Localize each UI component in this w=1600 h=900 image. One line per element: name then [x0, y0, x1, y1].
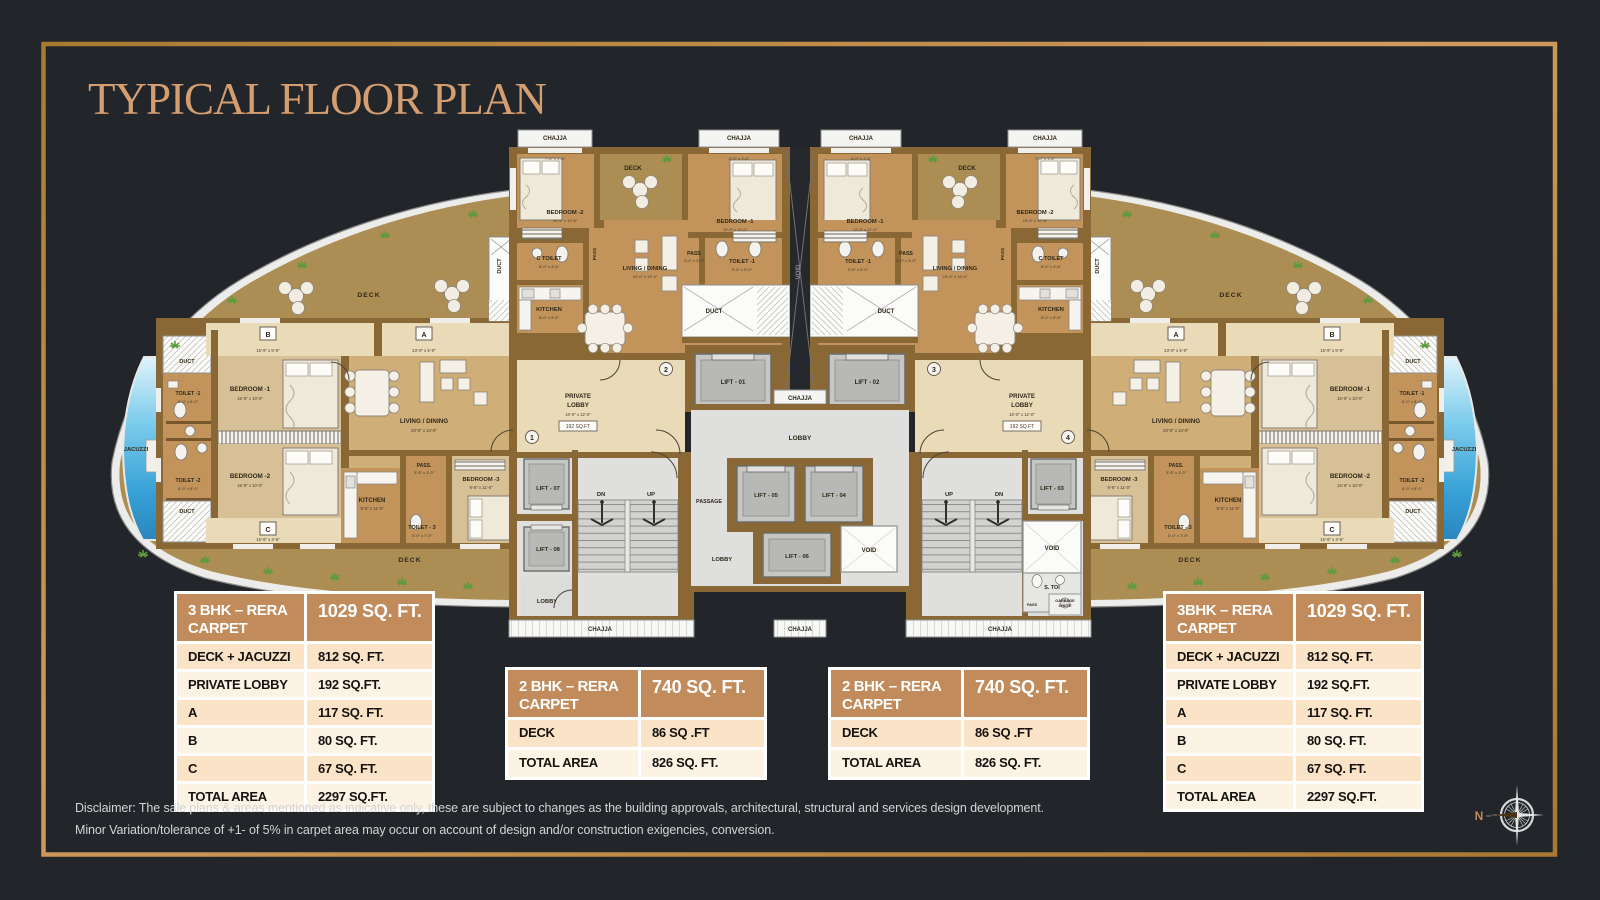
svg-text:PASS: PASS — [592, 248, 597, 260]
svg-text:C TOILET: C TOILET — [537, 256, 563, 262]
svg-text:TOILET -1: TOILET -1 — [729, 259, 755, 265]
svg-text:BEDROOM -1: BEDROOM -1 — [716, 219, 754, 225]
svg-text:PASSAGE: PASSAGE — [696, 499, 722, 505]
svg-text:7′-0″ x 1′-6″: 7′-0″ x 1′-6″ — [1035, 156, 1056, 161]
svg-text:KITCHEN: KITCHEN — [1038, 307, 1064, 313]
svg-text:C: C — [1329, 527, 1334, 534]
svg-text:LOBBY: LOBBY — [789, 435, 812, 442]
svg-text:JACUZZI: JACUZZI — [1452, 447, 1477, 453]
svg-text:15′-9″ x 10′-0″: 15′-9″ x 10′-0″ — [1337, 483, 1363, 488]
svg-text:DN: DN — [597, 492, 605, 498]
svg-text:15′-9″ x 10′-0″: 15′-9″ x 10′-0″ — [237, 483, 263, 488]
svg-text:VOID: VOID — [862, 548, 877, 554]
svg-text:6′-0″ x 1′-6″: 6′-0″ x 1′-6″ — [729, 156, 750, 161]
svg-text:8′-0″ x 5′-6″: 8′-0″ x 5′-6″ — [539, 315, 560, 320]
svg-text:9′-6″ x 11′-0″: 9′-6″ x 11′-0″ — [469, 485, 493, 490]
svg-text:BEDROOM -2: BEDROOM -2 — [1330, 473, 1371, 480]
svg-text:6′-0″ x 1′-6″: 6′-0″ x 1′-6″ — [851, 156, 872, 161]
svg-text:LIFT - 03: LIFT - 03 — [1040, 486, 1065, 492]
svg-text:LIFT - 04: LIFT - 04 — [822, 493, 847, 499]
svg-text:9′-6″ x 5′-0″: 9′-6″ x 5′-0″ — [732, 267, 753, 272]
svg-text:3′-5″ x 3′-5″: 3′-5″ x 3′-5″ — [1166, 470, 1187, 475]
svg-text:15′-9″ x 10′-0″: 15′-9″ x 10′-0″ — [1337, 396, 1363, 401]
svg-text:LIVING / DINING: LIVING / DINING — [1152, 418, 1200, 425]
svg-text:CHAJJA: CHAJJA — [788, 627, 813, 633]
svg-text:LIVING / DINING: LIVING / DINING — [933, 266, 978, 272]
svg-text:23′-0″ x 5′-0″: 23′-0″ x 5′-0″ — [1164, 348, 1188, 353]
svg-text:UP: UP — [945, 492, 953, 498]
svg-text:10′-0″ x 19′-0″: 10′-0″ x 19′-0″ — [943, 274, 968, 279]
svg-text:3′-0″ x 3′-0″: 3′-0″ x 3′-0″ — [896, 258, 917, 263]
svg-text:PASS.: PASS. — [1169, 463, 1184, 469]
svg-text:6′-0″ x 8′-0″: 6′-0″ x 8′-0″ — [1402, 399, 1423, 404]
svg-text:TOILET -1: TOILET -1 — [176, 391, 201, 397]
svg-text:12′-9″ x 11′-0″: 12′-9″ x 11′-0″ — [723, 227, 748, 232]
svg-text:2: 2 — [664, 367, 668, 374]
svg-text:10′-9″ x 10′-6″: 10′-9″ x 10′-6″ — [553, 218, 578, 223]
svg-text:B: B — [1329, 332, 1334, 339]
svg-text:VOID: VOID — [796, 264, 802, 279]
svg-text:PASS: PASS — [899, 251, 913, 257]
svg-text:B: B — [265, 332, 270, 339]
svg-text:KITCHEN: KITCHEN — [536, 307, 562, 313]
svg-text:VOID: VOID — [1045, 546, 1060, 552]
svg-text:LOBBY: LOBBY — [1011, 402, 1034, 409]
svg-text:DECK: DECK — [624, 165, 642, 172]
svg-text:KITCHEN: KITCHEN — [359, 498, 386, 504]
svg-text:PASS: PASS — [687, 251, 701, 257]
svg-text:DUCT: DUCT — [706, 309, 723, 315]
svg-text:N: N — [1475, 809, 1484, 823]
svg-text:BEDROOM -1: BEDROOM -1 — [1330, 386, 1371, 393]
svg-text:CHAJJA: CHAJJA — [588, 627, 613, 633]
svg-text:4: 4 — [1066, 435, 1070, 442]
svg-text:LIFT - 06: LIFT - 06 — [785, 554, 810, 560]
svg-text:C TOILET: C TOILET — [1039, 256, 1065, 262]
svg-text:7′-0″ x 1′-6″: 7′-0″ x 1′-6″ — [545, 156, 566, 161]
svg-text:10′-9″ x 10′-6″: 10′-9″ x 10′-6″ — [1023, 218, 1048, 223]
svg-text:6′-0″ x 8′-0″: 6′-0″ x 8′-0″ — [178, 399, 199, 404]
svg-text:3′-0″ x 3′-0″: 3′-0″ x 3′-0″ — [684, 258, 705, 263]
svg-text:15′-9″ x 5′-0″: 15′-9″ x 5′-0″ — [1320, 348, 1344, 353]
svg-text:TOILET -2: TOILET -2 — [1400, 478, 1425, 484]
svg-text:23′-0″ x 13′-0″: 23′-0″ x 13′-0″ — [411, 428, 437, 433]
svg-text:BEDROOM -1: BEDROOM -1 — [846, 219, 884, 225]
svg-text:192 SQ.FT: 192 SQ.FT — [1010, 424, 1034, 430]
svg-text:6′-0″ x 8′-0″: 6′-0″ x 8′-0″ — [178, 486, 199, 491]
svg-text:DUCT: DUCT — [1405, 359, 1421, 365]
svg-text:LOBBY: LOBBY — [537, 599, 557, 605]
svg-text:PRIVATE: PRIVATE — [1009, 393, 1035, 400]
svg-text:GARBAGE: GARBAGE — [1055, 599, 1075, 603]
svg-text:8′-0″ x 4′-6″: 8′-0″ x 4′-6″ — [1041, 264, 1062, 269]
svg-text:15′-9″ x 5′-0″: 15′-9″ x 5′-0″ — [256, 348, 280, 353]
svg-text:5′-0″ x 7′-9″: 5′-0″ x 7′-9″ — [1168, 533, 1189, 538]
svg-text:3: 3 — [932, 367, 936, 374]
svg-text:LIFT - 07: LIFT - 07 — [536, 486, 560, 492]
svg-text:DECK: DECK — [398, 557, 421, 564]
svg-text:8′-0″ x 11′-0″: 8′-0″ x 11′-0″ — [360, 506, 384, 511]
svg-text:LIFT - 02: LIFT - 02 — [855, 380, 880, 386]
svg-text:BEDROOM -2: BEDROOM -2 — [230, 473, 271, 480]
svg-text:DUCT: DUCT — [1095, 258, 1101, 274]
svg-text:192 SQ.FT: 192 SQ.FT — [566, 424, 590, 430]
svg-text:10′-0″ x 19′-0″: 10′-0″ x 19′-0″ — [633, 274, 658, 279]
svg-text:CHUTE: CHUTE — [1058, 604, 1072, 608]
svg-text:12′-9″ x 11′-0″: 12′-9″ x 11′-0″ — [853, 227, 878, 232]
svg-text:DUCT: DUCT — [179, 509, 195, 515]
svg-text:DN: DN — [995, 492, 1003, 498]
svg-text:BEDROOM -2: BEDROOM -2 — [546, 210, 583, 216]
svg-text:S. TOI: S. TOI — [1044, 585, 1060, 591]
svg-text:PASS: PASS — [1000, 248, 1005, 260]
svg-text:15′-9″ x 4′-5″: 15′-9″ x 4′-5″ — [1320, 537, 1344, 542]
svg-text:TOILET -1: TOILET -1 — [845, 259, 871, 265]
svg-text:LIFT - 08: LIFT - 08 — [536, 547, 561, 553]
svg-text:9′-6″ x 11′-0″: 9′-6″ x 11′-0″ — [1107, 485, 1131, 490]
svg-text:8′-0″ x 11′-0″: 8′-0″ x 11′-0″ — [1216, 506, 1240, 511]
svg-text:LOBBY: LOBBY — [712, 557, 732, 563]
svg-text:8′-0″ x 5′-6″: 8′-0″ x 5′-6″ — [1041, 315, 1062, 320]
svg-text:A: A — [421, 332, 426, 339]
svg-text:TOILET - 3: TOILET - 3 — [408, 525, 435, 531]
svg-text:DUCT: DUCT — [1405, 509, 1421, 515]
svg-text:CHAJJA: CHAJJA — [543, 136, 568, 142]
svg-text:BEDROOM -3: BEDROOM -3 — [462, 477, 500, 483]
svg-text:KITCHEN: KITCHEN — [1215, 498, 1242, 504]
svg-text:3′-5″ x 3′-5″: 3′-5″ x 3′-5″ — [414, 470, 435, 475]
svg-text:C: C — [265, 527, 270, 534]
svg-text:LOBBY: LOBBY — [567, 402, 590, 409]
svg-text:LIFT - 05: LIFT - 05 — [754, 493, 779, 499]
svg-text:LIVING / DINING: LIVING / DINING — [400, 418, 448, 425]
svg-text:CHAJJA: CHAJJA — [727, 136, 752, 142]
svg-text:LIVING / DINING: LIVING / DINING — [623, 266, 668, 272]
svg-text:9′-6″ x 5′-0″: 9′-6″ x 5′-0″ — [848, 267, 869, 272]
svg-text:6′-0″ x 8′-0″: 6′-0″ x 8′-0″ — [1402, 486, 1423, 491]
svg-text:16′-0″ x 12′-0″: 16′-0″ x 12′-0″ — [1009, 412, 1035, 417]
svg-text:CHAJJA: CHAJJA — [988, 627, 1013, 633]
svg-text:TOILET - 3: TOILET - 3 — [1164, 525, 1191, 531]
svg-text:CHAJJA: CHAJJA — [1033, 136, 1058, 142]
svg-text:DUCT: DUCT — [179, 359, 195, 365]
svg-text:DUCT: DUCT — [878, 309, 895, 315]
svg-text:PASS.: PASS. — [417, 463, 432, 469]
svg-text:BEDROOM -2: BEDROOM -2 — [1016, 210, 1053, 216]
svg-text:DECK: DECK — [357, 292, 380, 299]
svg-text:CHAJJA: CHAJJA — [788, 396, 813, 402]
svg-text:TOILET -1: TOILET -1 — [1400, 391, 1425, 397]
svg-text:JACUZZI: JACUZZI — [124, 447, 149, 453]
svg-text:CHAJJA: CHAJJA — [849, 136, 874, 142]
svg-text:15′-9″ x 10′-0″: 15′-9″ x 10′-0″ — [237, 396, 263, 401]
svg-text:DECK: DECK — [958, 165, 976, 172]
svg-text:PASS: PASS — [1027, 603, 1038, 607]
svg-text:15′-9″ x 4′-5″: 15′-9″ x 4′-5″ — [256, 537, 280, 542]
svg-text:5′-0″ x 7′-9″: 5′-0″ x 7′-9″ — [412, 533, 433, 538]
svg-text:DECK: DECK — [1178, 557, 1201, 564]
svg-text:1: 1 — [530, 435, 534, 442]
svg-text:BEDROOM -3: BEDROOM -3 — [1100, 477, 1138, 483]
svg-text:PRIVATE: PRIVATE — [565, 393, 591, 400]
svg-text:UP: UP — [647, 492, 655, 498]
svg-text:LIFT - 01: LIFT - 01 — [721, 380, 746, 386]
svg-text:BEDROOM -1: BEDROOM -1 — [230, 386, 271, 393]
svg-text:A: A — [1173, 332, 1178, 339]
svg-text:DUCT: DUCT — [497, 258, 503, 274]
svg-text:8′-0″ x 4′-6″: 8′-0″ x 4′-6″ — [539, 264, 560, 269]
svg-text:TOILET -2: TOILET -2 — [176, 478, 201, 484]
svg-text:23′-0″ x 5′-0″: 23′-0″ x 5′-0″ — [412, 348, 436, 353]
svg-text:23′-0″ x 13′-0″: 23′-0″ x 13′-0″ — [1163, 428, 1189, 433]
svg-text:DECK: DECK — [1219, 292, 1242, 299]
svg-text:16′-0″ x 12′-0″: 16′-0″ x 12′-0″ — [565, 412, 591, 417]
